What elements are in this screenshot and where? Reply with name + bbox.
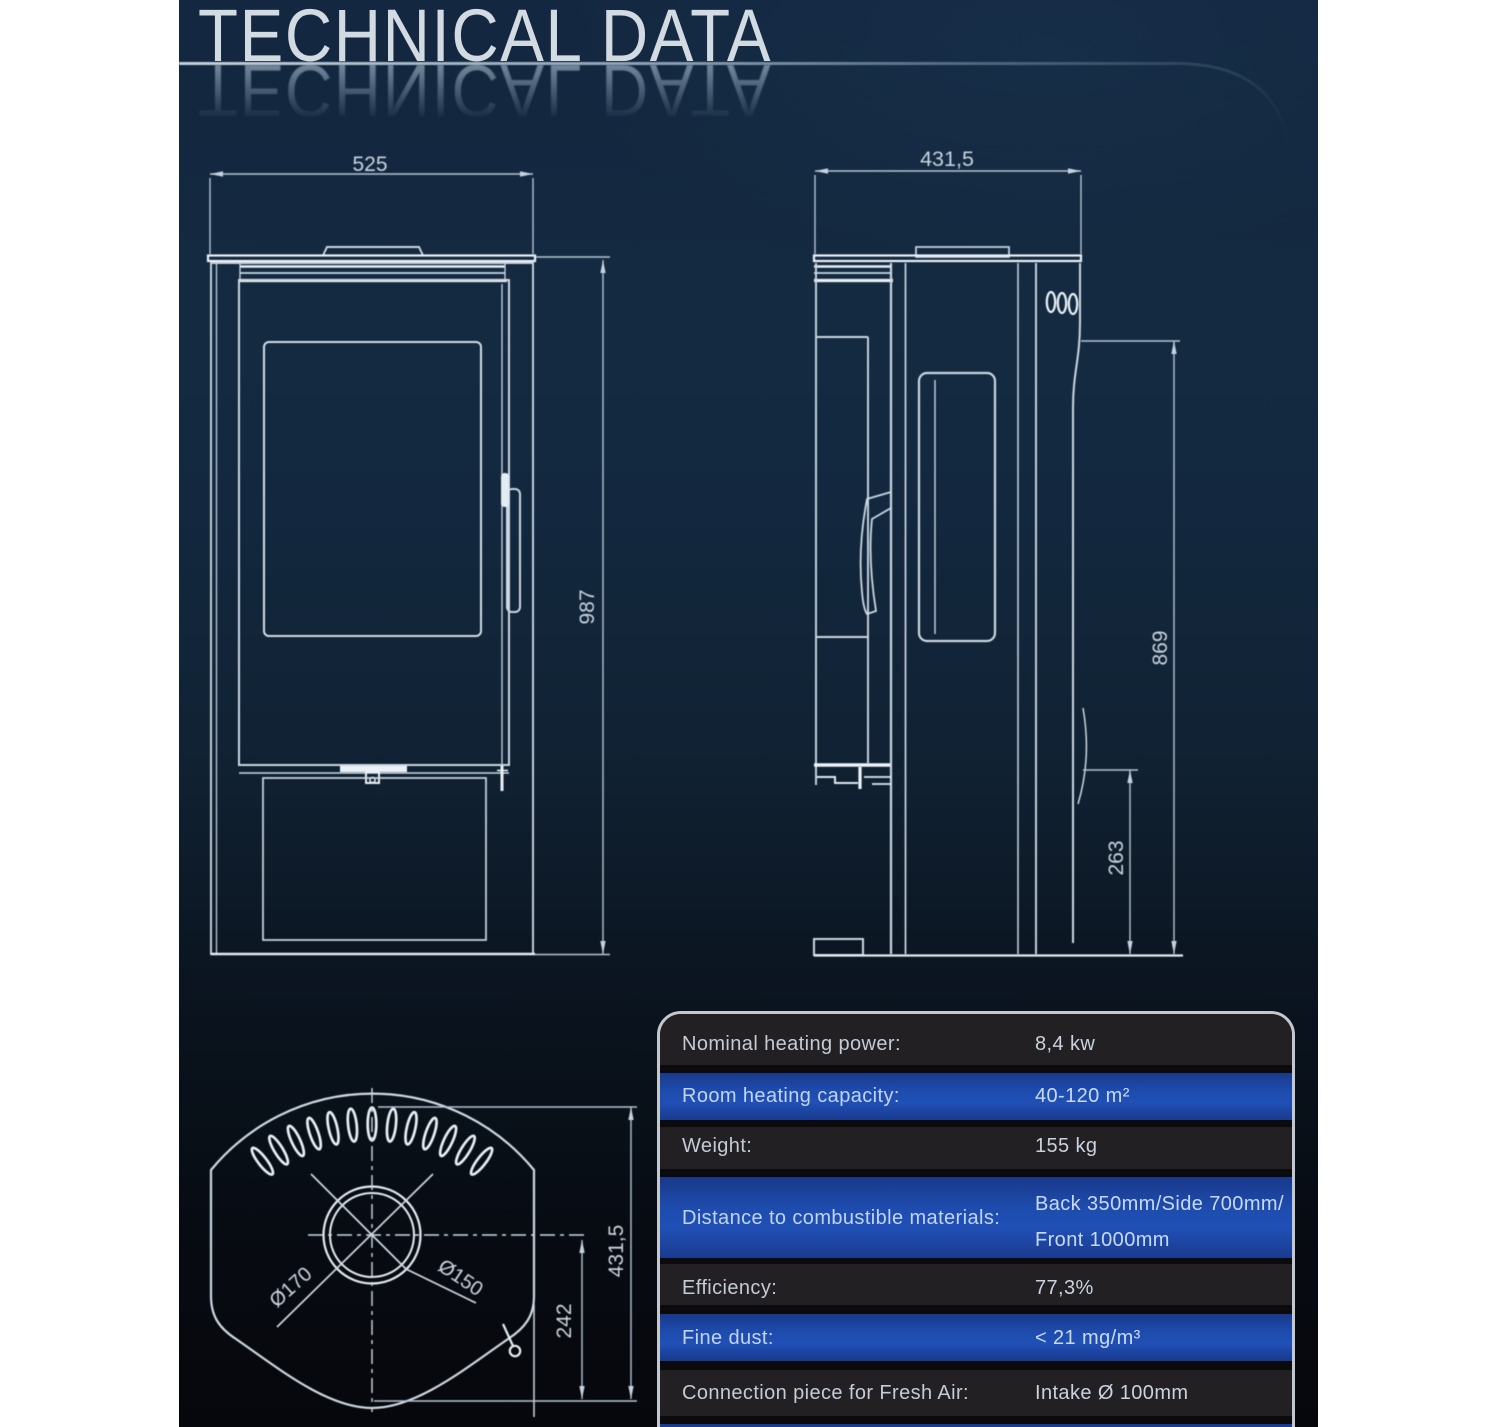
- svg-text:987: 987: [576, 589, 599, 624]
- svg-text:869: 869: [1149, 630, 1172, 665]
- svg-text:431,5: 431,5: [920, 147, 974, 171]
- svg-text:525: 525: [352, 153, 387, 176]
- svg-text:431,5: 431,5: [605, 1225, 628, 1278]
- svg-text:263: 263: [1105, 840, 1128, 875]
- svg-text:242: 242: [553, 1303, 576, 1338]
- svg-text:Ø150: Ø150: [434, 1255, 487, 1301]
- svg-text:Ø170: Ø170: [265, 1263, 316, 1312]
